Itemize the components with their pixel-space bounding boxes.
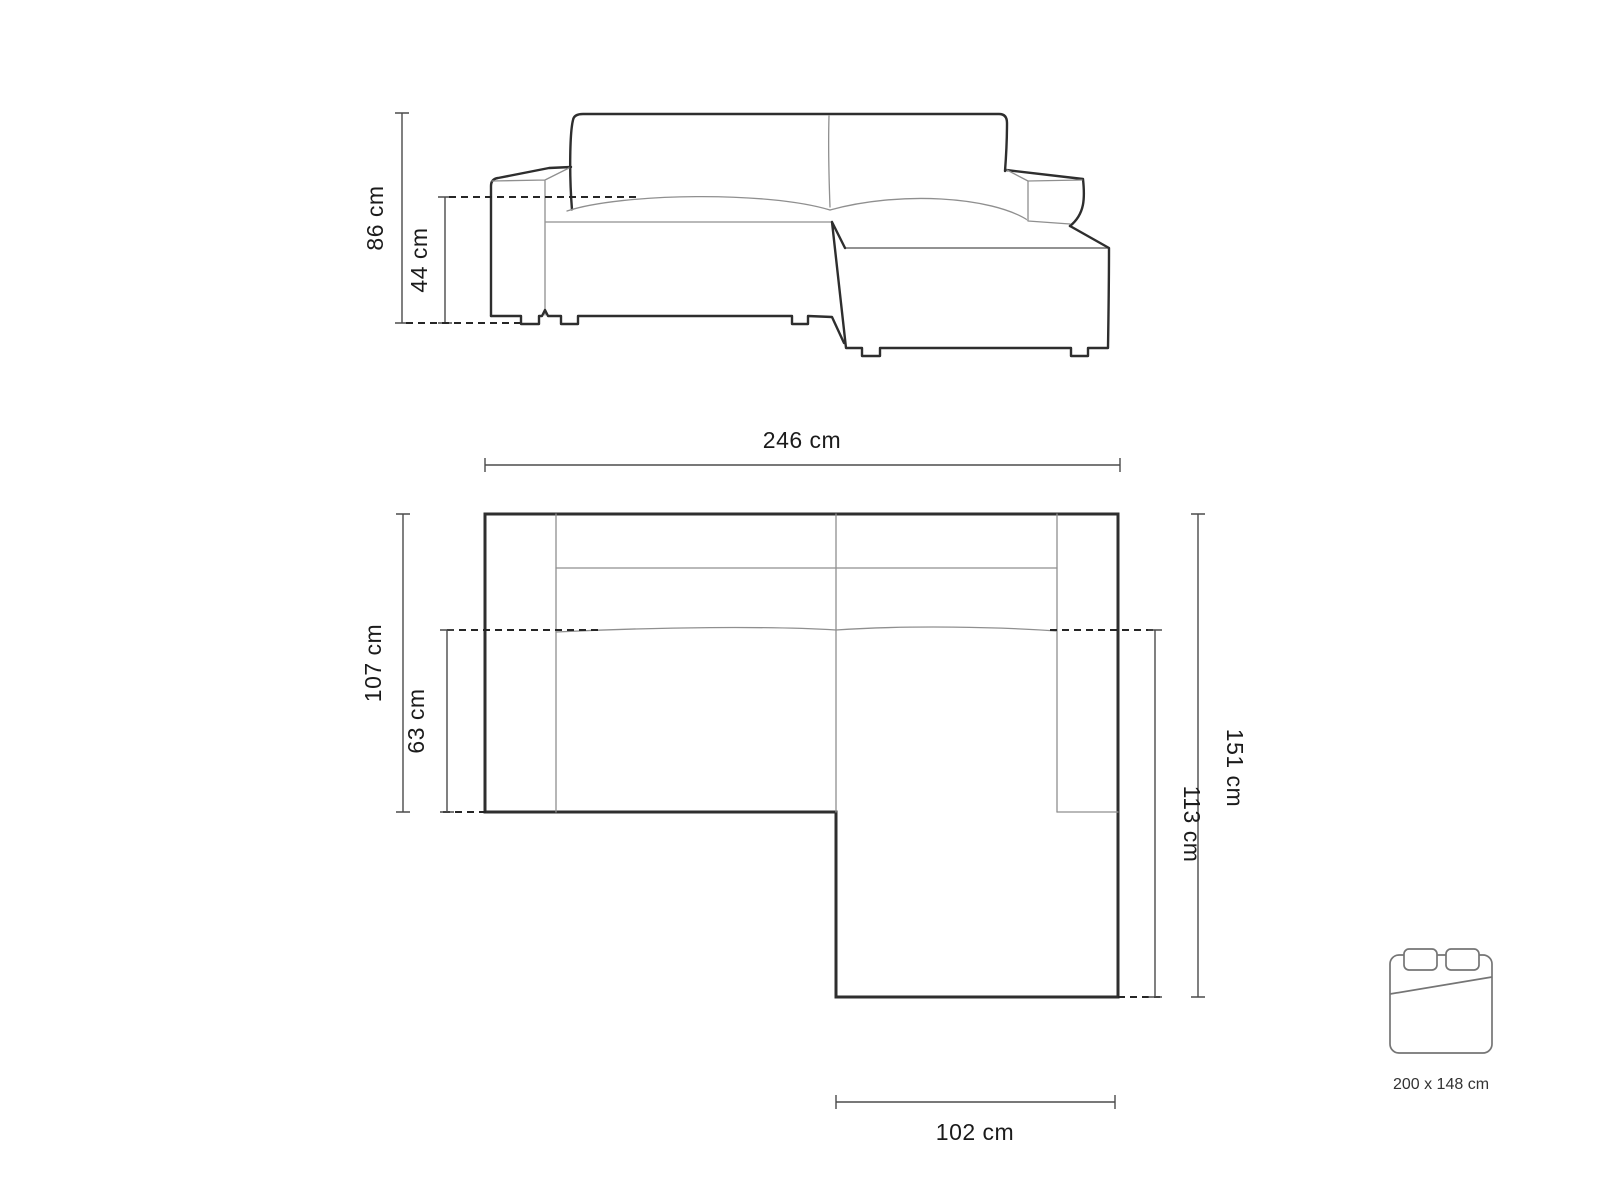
dimension-diagram-page: 86 cm 44 cm — [0, 0, 1600, 1200]
bed-size-indicator: 200 x 148 cm — [1390, 949, 1492, 1093]
dimension-chaise-total: 151 cm — [1191, 514, 1248, 997]
dimension-line — [1191, 514, 1205, 997]
pillow-right-icon — [1446, 949, 1479, 970]
dimension-line — [836, 1095, 1115, 1109]
sleeping-area-label: 200 x 148 cm — [1393, 1076, 1489, 1093]
dimension-label-total-depth: 107 cm — [360, 624, 386, 702]
dimension-line — [396, 514, 410, 812]
dimension-chaise-inner: 113 cm — [1148, 630, 1205, 997]
dimension-label-chaise-total: 151 cm — [1222, 729, 1248, 807]
top-view: 246 cm 107 cm 63 cm 151 cm 113 cm — [360, 427, 1248, 1145]
sofa-dimension-diagram: 86 cm 44 cm — [0, 0, 1600, 1200]
dimension-label-total-width: 246 cm — [763, 427, 841, 453]
dimension-line — [438, 197, 452, 323]
dimension-total-width: 246 cm — [485, 427, 1120, 472]
dimension-line — [485, 458, 1120, 472]
dimension-seat-depth: 63 cm — [403, 630, 454, 812]
plan-outline — [485, 514, 1118, 997]
dimension-line — [1148, 630, 1162, 997]
dimension-label-total-height: 86 cm — [362, 185, 388, 250]
dimension-chaise-width: 102 cm — [836, 1095, 1115, 1145]
dimension-label-seat-depth: 63 cm — [403, 688, 429, 753]
seat-base-fill — [546, 221, 844, 344]
chaise-fill — [832, 222, 1109, 348]
front-view: 86 cm 44 cm — [362, 113, 1109, 356]
dimension-total-depth: 107 cm — [360, 514, 410, 812]
dimension-line — [440, 630, 454, 812]
dimension-label-chaise-width: 102 cm — [936, 1119, 1014, 1145]
dimension-total-height: 86 cm — [362, 113, 409, 323]
dimension-label-chaise-inner: 113 cm — [1179, 786, 1205, 863]
pillow-left-icon — [1404, 949, 1437, 970]
dimension-label-seat-height: 44 cm — [406, 227, 432, 292]
